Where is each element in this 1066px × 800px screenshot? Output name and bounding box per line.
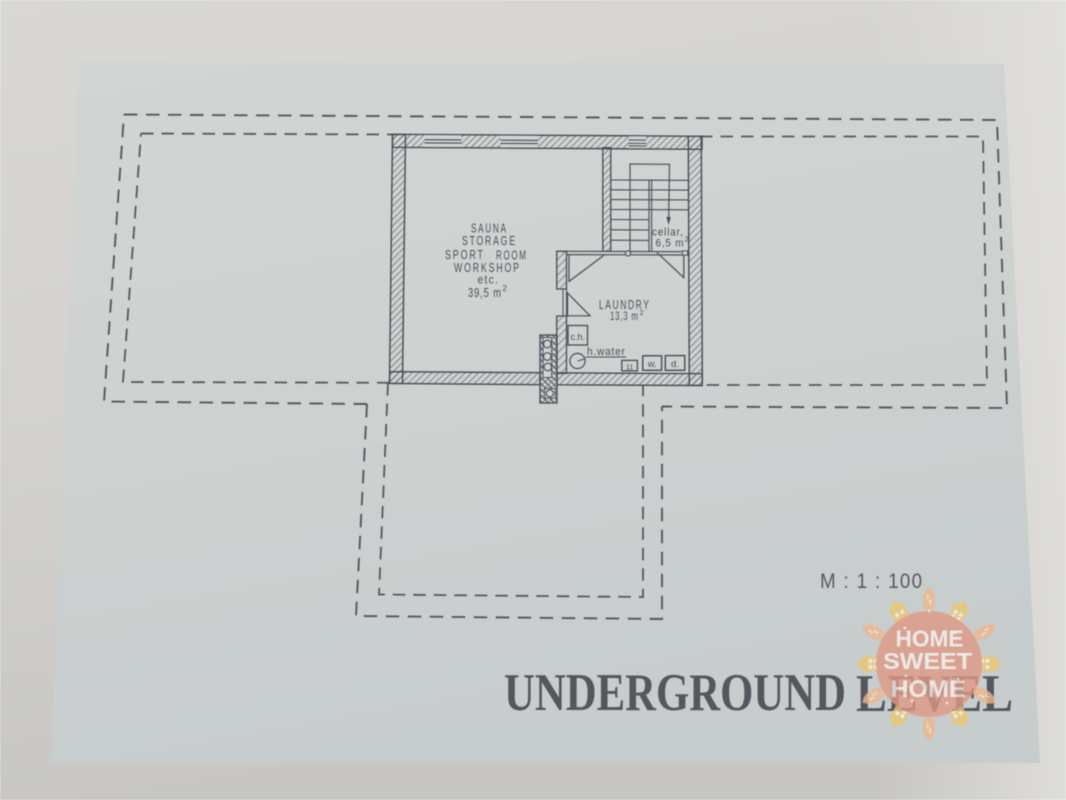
- svg-text:UNDERGROUND: UNDERGROUND: [504, 664, 846, 722]
- svg-text:SWEET: SWEET: [883, 648, 972, 674]
- svg-text:2: 2: [685, 235, 689, 244]
- svg-text:d.: d.: [671, 359, 679, 370]
- svg-text:w.: w.: [647, 359, 657, 370]
- svg-text:HOME: HOME: [891, 676, 966, 703]
- svg-text:etc.: etc.: [478, 274, 500, 287]
- svg-text:11: 11: [626, 363, 634, 372]
- svg-text:2: 2: [640, 308, 644, 317]
- svg-text:c.h.: c.h.: [571, 332, 586, 342]
- svg-text:STORAGE: STORAGE: [462, 234, 517, 248]
- svg-text:6,5 m: 6,5 m: [656, 237, 685, 250]
- svg-text:39,5 m: 39,5 m: [468, 287, 502, 301]
- svg-text:h.water: h.water: [587, 346, 626, 358]
- svg-text:13,3 m: 13,3 m: [610, 310, 639, 323]
- svg-text:2: 2: [503, 284, 508, 293]
- svg-text:M : 1 : 100: M : 1 : 100: [820, 570, 923, 593]
- svg-text:SPORT: SPORT: [445, 249, 485, 263]
